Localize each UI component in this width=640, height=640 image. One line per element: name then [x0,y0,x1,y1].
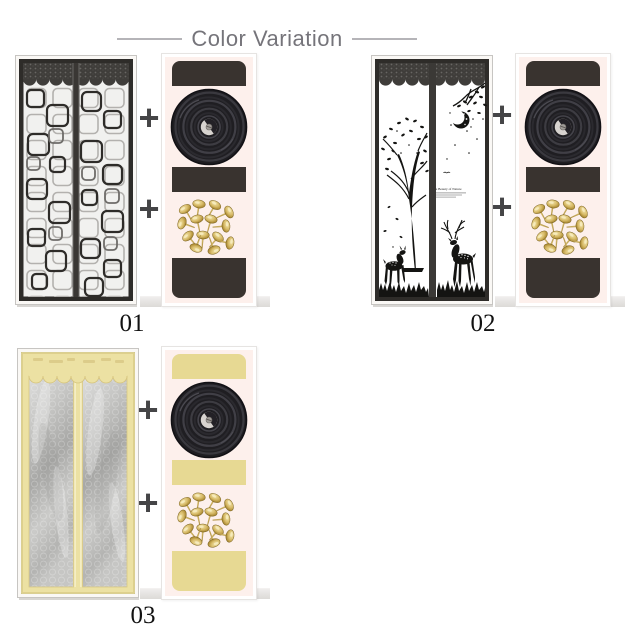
color-block-top [526,61,600,86]
accessory-strip-03 [161,346,257,600]
door-shadow-02 [373,305,493,307]
velcro-roll-image [524,88,602,166]
thumbtacks-image [171,195,247,259]
accessory-strip-backdrop [519,57,607,303]
velcro-roll-image [170,381,248,459]
accessory-strip-backdrop [165,57,253,303]
plus-icon: + [136,191,162,227]
variant-label-03: 03 [113,602,173,630]
thumbtacks-slot [171,195,247,259]
page-title-row: Color Variation [117,26,417,52]
title-dash-left [117,38,182,40]
thumbtacks-slot [171,488,247,552]
magnet-center-strip [73,63,80,297]
door-shadow-03 [19,598,139,600]
magnet-center-strip [75,376,76,587]
variant-label-01: 01 [102,310,162,338]
accessory-strip-01 [161,53,257,307]
thumbtacks-image [525,195,601,259]
variant-label-02: 02 [453,310,513,338]
door-print-heading: The Beauty of Nature [432,187,462,191]
velcro-roll-slot [170,381,248,459]
color-variation-panel: Color Variation [0,0,640,640]
door-curtain-01-black-grid [15,55,137,305]
color-block-bottom [172,551,246,591]
door-curtain-03-translucent [17,348,139,598]
door-curtain-03-image [21,352,135,594]
page-title: Color Variation [191,26,342,52]
velcro-roll-image [170,88,248,166]
accessory-strip-02 [515,53,611,307]
thumbtacks-image [171,488,247,552]
door-shadow-01 [17,305,137,307]
color-block-middle [172,167,246,192]
plus-icon: + [489,97,515,133]
accessory-strip-backdrop [165,350,253,596]
color-block-top [172,61,246,86]
plus-icon: + [489,189,515,225]
plus-icon: + [136,100,162,136]
title-dash-right [352,38,417,40]
color-block-middle [526,167,600,192]
tree-base [402,268,424,272]
velcro-roll-slot [170,88,248,166]
door-curtain-02-image: The Beauty of Nature [375,59,489,301]
thumbtacks-slot [525,195,601,259]
door-curtain-02-deer-print: The Beauty of Nature [371,55,493,305]
color-block-bottom [526,258,600,298]
color-block-middle [172,460,246,485]
plus-icon: + [135,392,161,428]
magnet-center-strip [429,63,436,297]
color-block-top [172,354,246,379]
velcro-roll-slot [524,88,602,166]
door-curtain-01-image [19,59,133,301]
color-block-bottom [172,258,246,298]
plus-icon: + [135,485,161,521]
